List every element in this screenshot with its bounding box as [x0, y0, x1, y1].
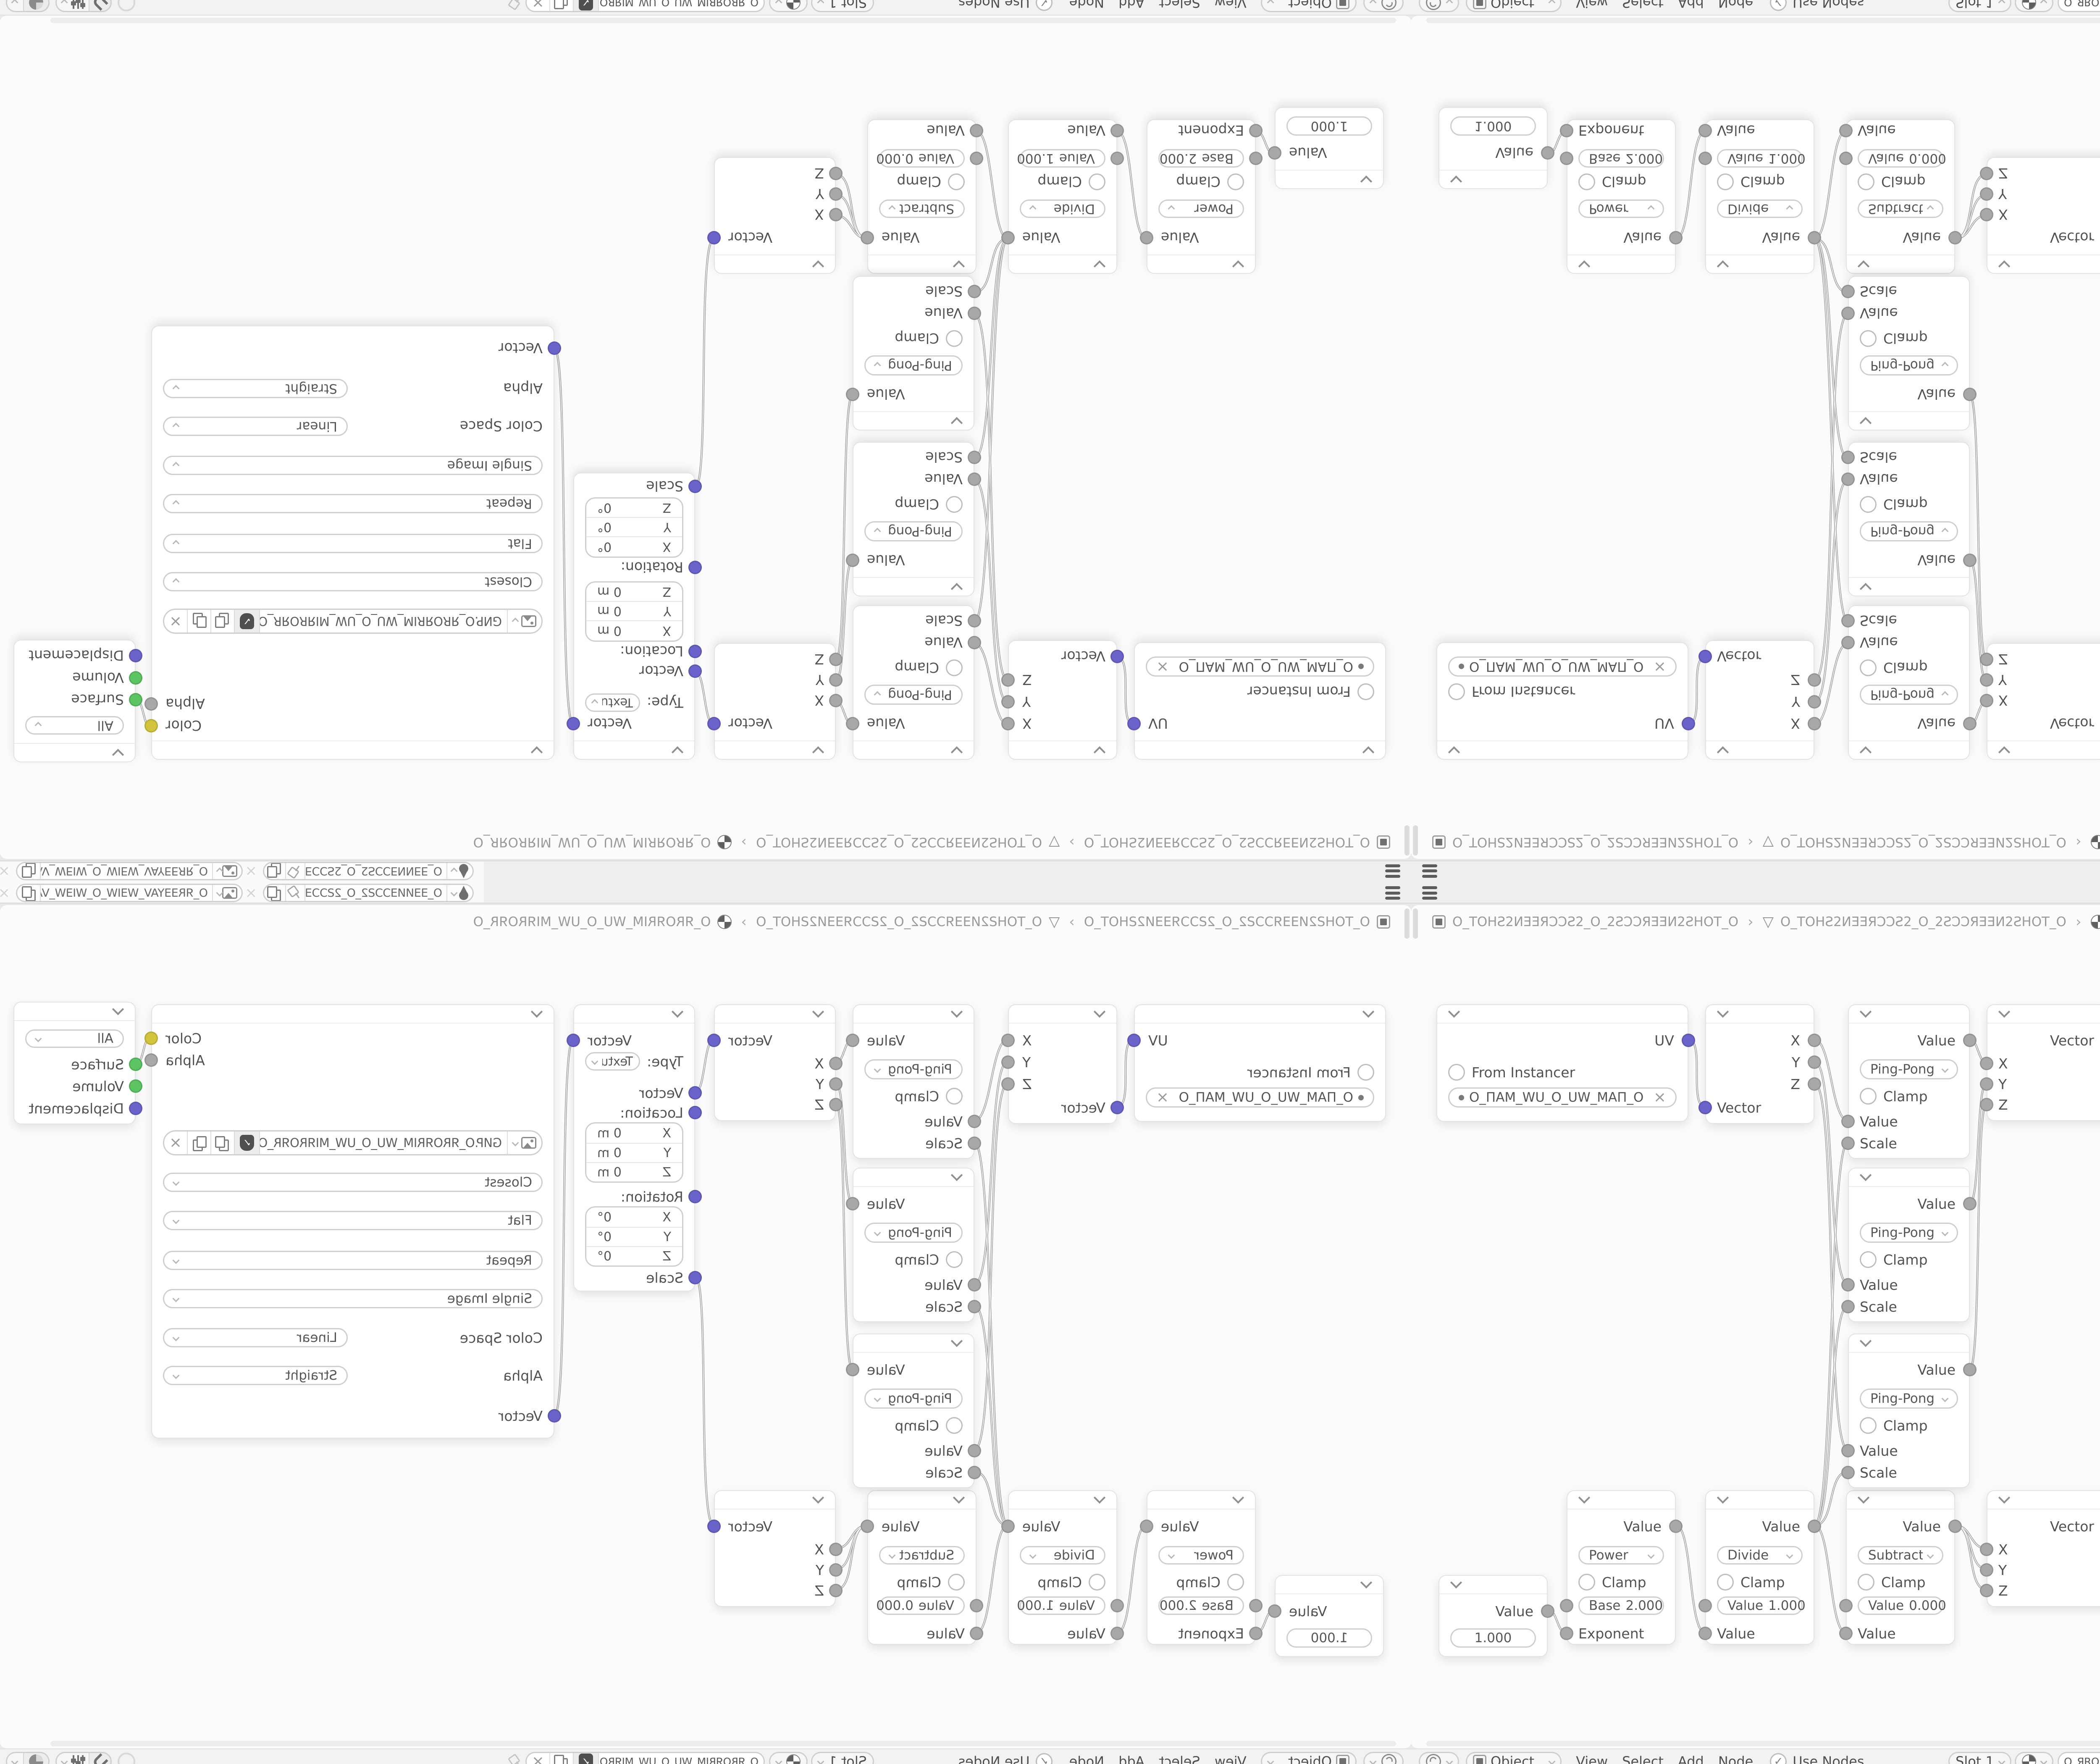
y-output-socket[interactable] — [1001, 1055, 1015, 1069]
scale-input-socket[interactable] — [968, 1137, 981, 1150]
overlays-dropdown[interactable] — [7, 0, 24, 11]
x-input-socket[interactable] — [829, 1057, 843, 1070]
node-collapse-button[interactable] — [1706, 1005, 1814, 1024]
clamp-checkbox[interactable] — [1717, 1574, 1734, 1591]
alpha-mode-dropdown[interactable]: Straight — [163, 1366, 348, 1385]
node-collapse-button[interactable] — [152, 1005, 554, 1024]
operation-dropdown[interactable]: Ping-Pong — [864, 1059, 963, 1079]
vector-output-socket[interactable] — [707, 231, 721, 244]
scrollbar-vertical[interactable] — [1404, 908, 1410, 939]
extension-dropdown[interactable]: Repeat — [163, 1251, 543, 1270]
node-collapse-button[interactable] — [1276, 1576, 1383, 1594]
node-collapse-button[interactable] — [853, 740, 974, 759]
snap-controls[interactable] — [55, 0, 112, 12]
slot-dropdown[interactable]: Slot 1 — [1948, 1752, 2011, 1764]
from-instancer-checkbox[interactable] — [1448, 683, 1465, 700]
close-icon[interactable]: × — [527, 0, 550, 11]
use-nodes-checkbox[interactable]: ✓ Use Nodes — [1770, 1753, 1864, 1764]
copy-icon[interactable] — [550, 0, 574, 11]
operation-dropdown[interactable]: Ping-Pong — [1860, 685, 1958, 705]
x-input-socket[interactable] — [1980, 694, 1993, 707]
base-field[interactable]: Base2.000 — [1578, 149, 1664, 168]
math-pingpong-node[interactable]: Value Ping-Pong Clamp Value Scale — [853, 1004, 974, 1159]
math-power-node[interactable]: Value Power Clamp Base2.000 Exponent — [1567, 119, 1676, 274]
value-field[interactable]: Value0.000 — [879, 1596, 965, 1615]
base-field[interactable]: Base2.000 — [1158, 149, 1244, 168]
separate-xyz-node[interactable]: X Y Z Vector — [1008, 1004, 1117, 1124]
value-field[interactable]: 1.000 — [1450, 116, 1536, 136]
z-output-socket[interactable] — [1001, 1077, 1015, 1091]
node-collapse-button[interactable] — [1147, 255, 1255, 273]
vector-input-socket[interactable] — [548, 341, 561, 355]
close-icon[interactable]: × — [164, 1131, 188, 1154]
copy-icon[interactable] — [264, 863, 286, 879]
vector-input-socket[interactable] — [1698, 650, 1712, 663]
value-input-socket[interactable] — [1110, 1599, 1124, 1612]
y-input-socket[interactable] — [829, 1563, 843, 1577]
value2-input-socket[interactable] — [970, 1627, 983, 1640]
proportional-edit-icon[interactable] — [118, 1753, 135, 1764]
clamp-checkbox[interactable] — [1860, 1417, 1877, 1434]
value-field[interactable]: Value1.000 — [1020, 149, 1105, 168]
pie-icon[interactable] — [24, 1753, 48, 1764]
uv-map-dropdown[interactable]: O_ПAM_WU_O_UW_MAП_O × — [1448, 1087, 1677, 1108]
node-collapse-button[interactable] — [1849, 411, 1969, 430]
value-output-socket[interactable] — [1140, 1520, 1153, 1533]
surface-input-socket[interactable] — [129, 1058, 142, 1071]
datablock-name[interactable]: O_ЯRƎƎYAV_WƎIW_O_WIƎW_VAYƎƎЯR_O — [41, 885, 213, 901]
image-icon[interactable] — [508, 1131, 541, 1154]
menu-select[interactable]: Select — [1622, 1753, 1664, 1764]
uv-map-node[interactable]: UV From Instancer O_ПAM_WU_O_UW_MAП_O × — [1134, 642, 1386, 760]
extension-dropdown[interactable]: Repeat — [163, 494, 543, 513]
copy-icon[interactable] — [550, 1753, 574, 1764]
pin-icon[interactable] — [286, 885, 305, 901]
y-output-socket[interactable] — [1808, 1055, 1821, 1069]
clamp-checkbox[interactable] — [946, 1088, 963, 1105]
value-output-socket[interactable] — [846, 1197, 859, 1210]
operation-dropdown[interactable]: Power — [1578, 1546, 1664, 1564]
scrollbar-horizontal[interactable] — [50, 1741, 1396, 1746]
combine-xyz-node[interactable]: Vector X Y Z — [1987, 643, 2100, 760]
z-input-socket[interactable] — [1980, 653, 1993, 666]
value-input-socket[interactable] — [968, 1444, 981, 1457]
editor-type-button[interactable] — [1363, 1752, 1404, 1764]
menu-icon[interactable] — [1422, 886, 1437, 900]
vector-input-socket[interactable] — [1698, 1101, 1712, 1114]
x-output-socket[interactable] — [1001, 717, 1015, 730]
scene-datablock-selector[interactable]: O_ƎƎИИƎƆƆƧ2_O_2ƧƆƆƎƎИ... — [263, 862, 474, 880]
value-input-socket[interactable] — [968, 636, 981, 649]
scale-input-socket[interactable] — [968, 285, 981, 298]
vector-input-socket[interactable] — [1110, 1101, 1124, 1114]
image-datablock-selector[interactable]: O_ЯRƎƎYAV_WƎIW_O_WIƎW_VAYƎƎЯR_O — [16, 862, 243, 880]
value-output-socket[interactable] — [846, 1034, 859, 1047]
math-divide-node[interactable]: Value Divide Clamp Value1.000 Value — [1705, 1490, 1814, 1645]
clamp-checkbox[interactable] — [1089, 173, 1105, 190]
x-input-socket[interactable] — [829, 208, 843, 221]
clamp-checkbox[interactable] — [1858, 1574, 1874, 1591]
snap-mode-dropdown[interactable] — [57, 1753, 89, 1764]
slot-dropdown[interactable]: Slot 1 — [811, 0, 874, 12]
value-input-socket[interactable] — [1841, 1444, 1855, 1457]
datablock-name[interactable]: O_ƎƎИИƎƆƆƧ2_O_2ƧƆƆƎƎИ... — [305, 885, 447, 901]
z-input-socket[interactable] — [1980, 1584, 1993, 1597]
uv-output-socket[interactable] — [1682, 717, 1695, 730]
value-field[interactable]: Value1.000 — [1717, 1596, 1803, 1615]
vector-output-socket[interactable] — [707, 1520, 721, 1533]
value-field[interactable]: Value0.000 — [1858, 149, 1943, 168]
value-field[interactable]: 1.000 — [1286, 116, 1372, 136]
overlays-dropdown[interactable] — [7, 1753, 24, 1764]
value-field[interactable]: 1.000 — [1286, 1628, 1372, 1648]
math-divide-node[interactable]: Value Divide Clamp Value1.000 Value — [1008, 1490, 1117, 1645]
value-output-socket[interactable] — [1541, 146, 1554, 160]
y-input-socket[interactable] — [1980, 187, 1993, 201]
node-collapse-button[interactable] — [1849, 1168, 1969, 1187]
scale-input-socket[interactable] — [1841, 285, 1855, 298]
unpack-icon[interactable] — [188, 610, 211, 633]
snap-controls[interactable] — [55, 1752, 112, 1764]
clamp-checkbox[interactable] — [946, 1417, 963, 1434]
overlays-toggle[interactable] — [6, 0, 50, 12]
operation-dropdown[interactable]: Ping-Pong — [864, 521, 963, 541]
material-datablock[interactable]: O_ЯROЯRIM_WU_O_UW_MIЯROЯR_O ✓ × — [525, 1752, 765, 1764]
clamp-checkbox[interactable] — [1717, 173, 1734, 190]
value-output-socket[interactable] — [1541, 1604, 1554, 1618]
proportional-edit-icon[interactable] — [118, 0, 135, 11]
x-input-socket[interactable] — [1980, 1057, 1993, 1070]
value-output-socket[interactable] — [1948, 231, 1962, 244]
color-space-dropdown[interactable]: Linear — [163, 417, 348, 436]
menu-view[interactable]: View — [1215, 0, 1247, 10]
scale-input-socket[interactable] — [968, 614, 981, 627]
node-collapse-button[interactable] — [1009, 255, 1116, 273]
shader-type-dropdown[interactable]: Object — [1466, 1752, 1562, 1764]
value2-input-socket[interactable] — [1839, 124, 1853, 137]
close-icon[interactable]: × — [164, 610, 188, 633]
paint-icon[interactable] — [447, 863, 472, 879]
node-collapse-button[interactable] — [1135, 740, 1385, 759]
z-output-socket[interactable] — [1808, 1077, 1821, 1091]
vector-input-socket[interactable] — [688, 1086, 702, 1100]
value-input-socket[interactable] — [970, 152, 983, 165]
value-output-socket[interactable] — [861, 231, 874, 244]
y-output-socket[interactable] — [1808, 695, 1821, 709]
node-collapse-button[interactable] — [853, 411, 974, 430]
node-collapse-button[interactable] — [1706, 740, 1814, 759]
node-collapse-button[interactable] — [1567, 255, 1675, 273]
value2-input-socket[interactable] — [970, 124, 983, 137]
y-input-socket[interactable] — [829, 673, 843, 687]
value-output-socket[interactable] — [1140, 231, 1153, 244]
node-collapse-button[interactable] — [1567, 1491, 1675, 1509]
value-output-socket[interactable] — [1963, 717, 1977, 730]
projection-dropdown[interactable]: Flat — [163, 534, 543, 553]
vector-output-socket[interactable] — [567, 1034, 580, 1047]
z-input-socket[interactable] — [829, 1098, 843, 1111]
from-instancer-checkbox[interactable] — [1357, 683, 1374, 700]
node-collapse-button[interactable] — [715, 1005, 835, 1024]
menu-add[interactable]: Add — [1678, 1753, 1704, 1764]
datablock-name[interactable]: O_ЯRƎƎYAV_WƎIW_O_WIƎW_VAYƎƎЯR_O — [41, 863, 213, 879]
clamp-checkbox[interactable] — [1227, 1574, 1244, 1591]
mapping-node[interactable]: Vector Type: Texture Vector Location: X0… — [573, 1004, 695, 1291]
shield-icon[interactable]: ✓ — [235, 1131, 260, 1154]
operation-dropdown[interactable]: Divide — [1020, 199, 1105, 218]
node-collapse-button[interactable] — [1009, 1491, 1116, 1509]
value-field[interactable]: Value0.000 — [1858, 1596, 1943, 1615]
scale-input-socket[interactable] — [968, 451, 981, 464]
uv-map-node[interactable]: UV From Instancer O_ПAM_WU_O_UW_MAП_O × — [1436, 642, 1688, 760]
y-input-socket[interactable] — [829, 1077, 843, 1091]
value2-input-socket[interactable] — [1698, 124, 1712, 137]
image-icon[interactable] — [508, 610, 541, 633]
y-input-socket[interactable] — [1980, 673, 1993, 687]
copy-icon[interactable] — [211, 610, 235, 633]
scrollbar-horizontal[interactable] — [1426, 18, 2100, 23]
math-divide-node[interactable]: Value Divide Clamp Value1.000 Value — [1705, 119, 1814, 274]
volume-input-socket[interactable] — [129, 671, 142, 685]
material-output-node[interactable]: All Surface Volume Displacement — [13, 640, 136, 762]
uv-output-socket[interactable] — [1127, 717, 1141, 730]
scale-input-socket[interactable] — [968, 1300, 981, 1313]
value-node[interactable]: Value 1.000 — [1438, 1575, 1548, 1657]
math-subtract-node[interactable]: Value Subtract Clamp Value0.000 Value — [1846, 1490, 1955, 1645]
close-icon[interactable]: × — [1654, 659, 1666, 674]
value-input-socket[interactable] — [1698, 152, 1712, 165]
menu-icon[interactable] — [1385, 864, 1400, 878]
copy-icon[interactable] — [211, 1131, 235, 1154]
shader-type-dropdown[interactable]: Object — [1261, 1752, 1357, 1764]
image-icon[interactable] — [213, 885, 241, 901]
operation-dropdown[interactable]: Ping-Pong — [1860, 355, 1958, 375]
clamp-checkbox[interactable] — [1227, 173, 1244, 190]
value-node[interactable]: Value 1.000 — [1275, 107, 1384, 189]
material-browse-button[interactable] — [2015, 0, 2053, 12]
close-icon[interactable]: × — [527, 1753, 550, 1764]
node-collapse-button[interactable] — [1987, 255, 2100, 273]
math-pingpong-node[interactable]: Value Ping-Pong Clamp Value Scale — [1848, 276, 1970, 430]
menu-node[interactable]: Node — [1069, 1753, 1105, 1764]
value-output-socket[interactable] — [846, 388, 859, 401]
operation-dropdown[interactable]: Ping-Pong — [864, 1389, 963, 1409]
operation-dropdown[interactable]: Subtract — [879, 199, 965, 218]
from-instancer-checkbox[interactable] — [1357, 1064, 1374, 1081]
math-power-node[interactable]: Value Power Clamp Base2.000 Exponent — [1147, 119, 1256, 274]
value-output-socket[interactable] — [1268, 1604, 1281, 1618]
z-input-socket[interactable] — [829, 653, 843, 666]
location-values[interactable]: X0 m Y0 m Z0 m — [585, 581, 683, 642]
rotation-values[interactable]: X0° Y0° Z0° — [585, 1206, 683, 1267]
image-datablock[interactable]: GИP.O_ЯROЯRIM_WU_O_UW_MIЯROЯR_O.PNG ✓ × — [163, 609, 543, 634]
node-collapse-button[interactable] — [853, 1005, 974, 1024]
value-field[interactable]: Value1.000 — [1717, 149, 1803, 168]
scale-input-socket[interactable] — [968, 1466, 981, 1479]
material-datablock[interactable]: O_ЯROЯRIM_WU_O_UW_MIЯROЯR_O ✓ × — [2058, 0, 2100, 12]
overlays-toggle[interactable] — [6, 1752, 50, 1764]
pin-icon[interactable] — [508, 1753, 524, 1764]
separate-xyz-node[interactable]: X Y Z Vector — [1008, 640, 1117, 760]
exponent-input-socket[interactable] — [1560, 1627, 1573, 1640]
node-collapse-button[interactable] — [574, 1005, 694, 1024]
value-input-socket[interactable] — [1841, 1115, 1855, 1128]
clamp-checkbox[interactable] — [1578, 173, 1595, 190]
material-datablock[interactable]: O_ЯROЯRIM_WU_O_UW_MIЯROЯR_O ✓ × — [525, 0, 765, 12]
node-collapse-button[interactable] — [152, 740, 554, 759]
alpha-mode-dropdown[interactable]: Straight — [163, 379, 348, 398]
snap-mode-dropdown[interactable] — [57, 0, 89, 11]
vector-output-socket[interactable] — [707, 1034, 721, 1047]
scrollbar-vertical[interactable] — [1413, 825, 1418, 856]
editor-type-button[interactable] — [1419, 1752, 1459, 1764]
image-icon[interactable] — [213, 863, 241, 879]
clamp-checkbox[interactable] — [1089, 1574, 1105, 1591]
z-output-socket[interactable] — [1001, 673, 1015, 687]
scale-input-socket[interactable] — [1841, 1137, 1855, 1150]
operation-dropdown[interactable]: Subtract — [879, 1546, 965, 1564]
node-collapse-button[interactable] — [853, 1168, 974, 1187]
value-output-socket[interactable] — [1808, 1520, 1821, 1533]
uv-output-socket[interactable] — [1682, 1034, 1695, 1047]
value2-input-socket[interactable] — [1698, 1627, 1712, 1640]
math-pingpong-node[interactable]: Value Ping-Pong Clamp Value Scale — [1848, 605, 1970, 760]
combine-xyz-node[interactable]: Vector X Y Z — [714, 643, 836, 760]
value-output-socket[interactable] — [846, 1363, 859, 1376]
vector-input-socket[interactable] — [688, 664, 702, 678]
operation-dropdown[interactable]: Ping-Pong — [864, 1223, 963, 1243]
menu-add[interactable]: Add — [1118, 0, 1144, 10]
node-editor-canvas[interactable]: O_TOHƧ2ИƎƎЯƆƆƧ2_O_2ƧƆƆЯƎƎИ2ƧHOT_O › ▽ O_… — [1411, 905, 2100, 1748]
math-pingpong-node[interactable]: Value Ping-Pong Clamp Value Scale — [853, 1168, 974, 1322]
value-output-socket[interactable] — [861, 1520, 874, 1533]
math-pingpong-node[interactable]: Value Ping-Pong Clamp Value Scale — [1848, 1004, 1970, 1159]
x-input-socket[interactable] — [1980, 1543, 1993, 1556]
image-datablock-selector[interactable]: O_ЯRƎƎYAV_WƎIW_O_WIƎW_VAYƎƎЯR_O — [16, 884, 243, 902]
operation-dropdown[interactable]: Ping-Pong — [1860, 1389, 1958, 1409]
menu-select[interactable]: Select — [1159, 1753, 1200, 1764]
node-collapse-button[interactable] — [715, 740, 835, 759]
value-input-socket[interactable] — [1839, 152, 1853, 165]
color-space-dropdown[interactable]: Linear — [163, 1328, 348, 1347]
clamp-checkbox[interactable] — [1858, 173, 1874, 190]
node-collapse-button[interactable] — [1135, 1005, 1385, 1024]
node-collapse-button[interactable] — [715, 1491, 835, 1509]
node-collapse-button[interactable] — [1849, 1005, 1969, 1024]
value2-input-socket[interactable] — [1110, 1627, 1124, 1640]
z-input-socket[interactable] — [1980, 1098, 1993, 1111]
mapping-type-dropdown[interactable]: Texture — [585, 693, 640, 712]
node-collapse-button[interactable] — [868, 255, 976, 273]
x-output-socket[interactable] — [1001, 1034, 1015, 1047]
use-nodes-checkbox[interactable]: ✓ Use Nodes — [1770, 0, 1864, 11]
alpha-output-socket[interactable] — [144, 1053, 158, 1067]
vector-output-socket[interactable] — [707, 717, 721, 730]
alpha-output-socket[interactable] — [144, 697, 158, 711]
pie-icon[interactable] — [24, 0, 48, 11]
image-datablock[interactable]: GИP.O_ЯROЯRIM_WU_O_UW_MIЯROЯR_O.PNG ✓ × — [163, 1130, 543, 1155]
value-output-socket[interactable] — [1268, 146, 1281, 160]
node-collapse-button[interactable] — [853, 1334, 974, 1353]
combine-xyz-node[interactable]: Vector X Y Z — [1987, 157, 2100, 274]
mapping-node[interactable]: Vector Type: Texture Vector Location: X0… — [573, 472, 695, 760]
scrollbar-vertical[interactable] — [1404, 825, 1410, 856]
value-input-socket[interactable] — [1841, 1278, 1855, 1291]
rotation-input-socket[interactable] — [688, 561, 702, 574]
operation-dropdown[interactable]: Power — [1158, 1546, 1244, 1564]
menu-view[interactable]: View — [1215, 1753, 1247, 1764]
menu-add[interactable]: Add — [1678, 0, 1704, 10]
value-field[interactable]: 1.000 — [1450, 1628, 1536, 1648]
base-field[interactable]: Base2.000 — [1158, 1596, 1244, 1615]
uv-map-dropdown[interactable]: O_ПAM_WU_O_UW_MAП_O × — [1146, 1087, 1374, 1108]
target-dropdown[interactable]: All — [25, 1029, 124, 1048]
value-input-socket[interactable] — [1698, 1599, 1712, 1612]
use-nodes-checkbox[interactable]: ✓ Use Nodes — [958, 0, 1053, 11]
operation-dropdown[interactable]: Ping-Pong — [1860, 1223, 1958, 1243]
source-dropdown[interactable]: Single Image — [163, 1289, 543, 1308]
math-pingpong-node[interactable]: Value Ping-Pong Clamp Value Scale — [853, 605, 974, 760]
scene-datablock-selector[interactable]: O_ƎƎИИƎƆƆƧ2_O_2ƧƆƆƎƎИ... — [263, 884, 474, 902]
copy-icon[interactable] — [19, 885, 41, 901]
node-collapse-button[interactable] — [1009, 740, 1116, 759]
displacement-input-socket[interactable] — [129, 649, 142, 662]
use-nodes-checkbox[interactable]: ✓ Use Nodes — [958, 1753, 1053, 1764]
scale-input-socket[interactable] — [1841, 1466, 1855, 1479]
value-output-socket[interactable] — [1963, 1034, 1977, 1047]
editor-type-button[interactable] — [1419, 0, 1459, 12]
material-browse-button[interactable] — [769, 0, 808, 12]
node-collapse-button[interactable] — [1439, 170, 1547, 188]
scrollbar-horizontal[interactable] — [1426, 1741, 2100, 1746]
value-output-socket[interactable] — [1001, 231, 1015, 244]
math-pingpong-node[interactable]: Value Ping-Pong Clamp Value Scale — [1848, 1333, 1970, 1488]
value-output-socket[interactable] — [1808, 231, 1821, 244]
color-output-socket[interactable] — [144, 1032, 158, 1045]
operation-dropdown[interactable]: Ping-Pong — [864, 685, 963, 705]
node-collapse-button[interactable] — [1849, 577, 1969, 596]
scrollbar-horizontal[interactable] — [50, 18, 1396, 23]
value-input-socket[interactable] — [1841, 307, 1855, 320]
value2-input-socket[interactable] — [1839, 1627, 1853, 1640]
combine-xyz-node[interactable]: Vector X Y Z — [714, 1490, 836, 1607]
clamp-checkbox[interactable] — [946, 659, 963, 676]
copy-icon[interactable] — [19, 863, 41, 879]
value-input-socket[interactable] — [970, 1599, 983, 1612]
fake-user-shield-icon[interactable]: ✓ — [574, 0, 599, 11]
clamp-checkbox[interactable] — [946, 330, 963, 347]
value-output-socket[interactable] — [1669, 1520, 1683, 1533]
exponent-input-socket[interactable] — [1249, 1627, 1263, 1640]
y-input-socket[interactable] — [829, 187, 843, 201]
rotation-input-socket[interactable] — [688, 1190, 702, 1203]
image-texture-node[interactable]: Color Alpha GИP.O_ЯROЯRIM_WU_O_UW_MIЯROЯ… — [151, 325, 554, 760]
image-texture-node[interactable]: Color Alpha GИP.O_ЯROЯRIM_WU_O_UW_MIЯROЯ… — [151, 1004, 554, 1438]
surface-input-socket[interactable] — [129, 693, 142, 706]
shader-type-dropdown[interactable]: Object — [1466, 0, 1562, 12]
value-field[interactable]: Value1.000 — [1020, 1596, 1105, 1615]
math-power-node[interactable]: Value Power Clamp Base2.000 Exponent — [1147, 1490, 1256, 1645]
operation-dropdown[interactable]: Power — [1158, 199, 1244, 218]
node-collapse-button[interactable] — [1706, 1491, 1814, 1509]
magnet-icon[interactable] — [89, 1753, 110, 1764]
clamp-checkbox[interactable] — [1860, 1088, 1877, 1105]
operation-dropdown[interactable]: Divide — [1717, 1546, 1803, 1564]
menu-node[interactable]: Node — [1718, 1753, 1753, 1764]
scale-input-socket[interactable] — [1841, 614, 1855, 627]
shader-type-dropdown[interactable]: Object — [1261, 0, 1357, 12]
base-input-socket[interactable] — [1249, 152, 1263, 165]
